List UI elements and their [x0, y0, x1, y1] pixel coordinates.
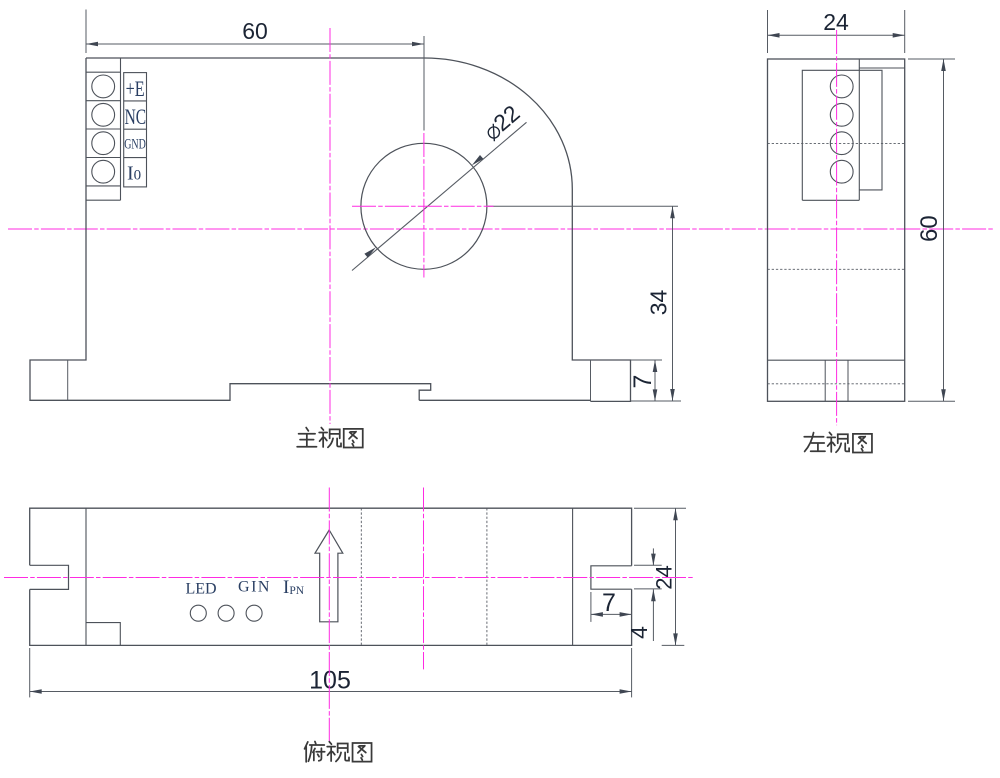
svg-text:60: 60: [916, 215, 943, 242]
svg-text:105: 105: [309, 667, 351, 695]
svg-text:+E: +E: [126, 76, 145, 101]
svg-text:34: 34: [646, 290, 672, 316]
svg-text:24: 24: [823, 9, 849, 35]
svg-text:LED: LED: [185, 581, 216, 598]
svg-text:7: 7: [602, 589, 616, 617]
svg-text:GND: GND: [124, 137, 146, 153]
svg-text:60: 60: [242, 18, 268, 44]
svg-text:NC: NC: [125, 104, 147, 129]
svg-text:GIN: GIN: [238, 579, 271, 596]
svg-text:7: 7: [629, 375, 657, 389]
svg-text:4: 4: [626, 626, 652, 639]
